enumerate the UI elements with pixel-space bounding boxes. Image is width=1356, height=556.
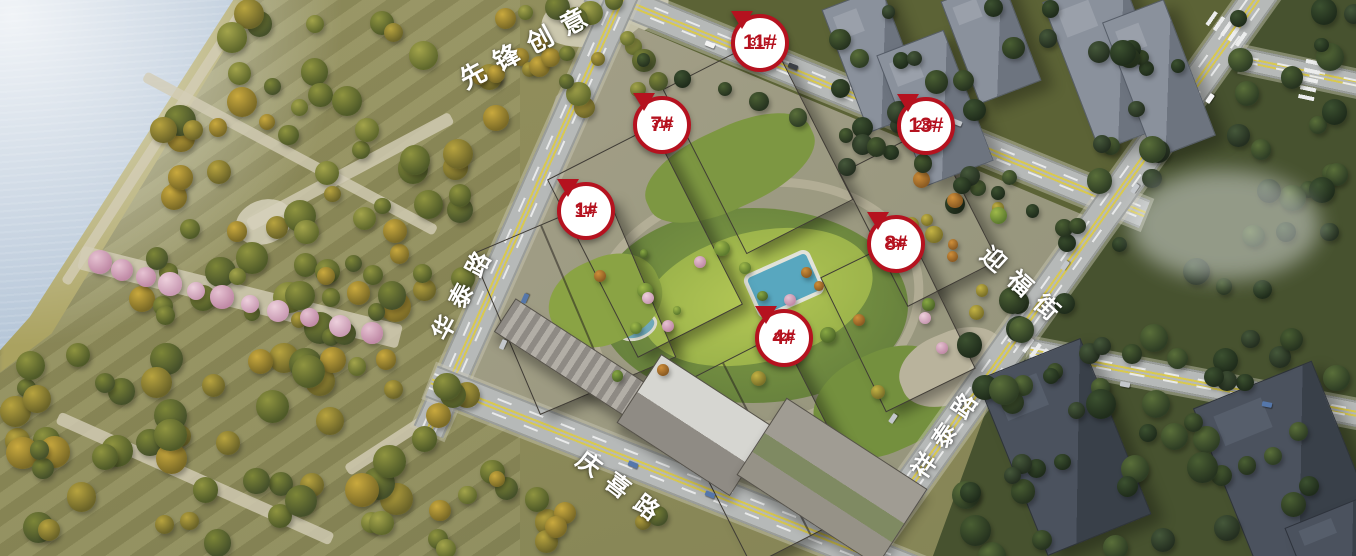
tree [820, 327, 835, 342]
tree [1142, 169, 1162, 189]
tree [921, 214, 933, 226]
tree [831, 79, 851, 99]
tree [637, 53, 650, 66]
tree [292, 355, 325, 388]
tree [111, 259, 133, 281]
building-floors: 31F [652, 118, 673, 131]
tree [984, 0, 1003, 17]
tree [141, 367, 172, 398]
tree [88, 250, 112, 274]
tree [936, 342, 948, 354]
building-floors: 31F [576, 204, 597, 217]
tree [867, 137, 886, 156]
tree [1228, 48, 1252, 72]
tree [525, 487, 549, 511]
tree [308, 83, 333, 108]
pin-tail [557, 179, 579, 197]
tree [990, 207, 1007, 224]
tree [620, 31, 635, 46]
tree [1281, 492, 1306, 517]
tree [30, 440, 49, 459]
tree [306, 15, 324, 33]
tree [158, 272, 181, 295]
tree [361, 322, 382, 343]
tree [315, 161, 339, 185]
tree [919, 312, 931, 324]
tree [256, 390, 289, 423]
tree [209, 118, 228, 137]
tree [1323, 365, 1350, 392]
tree [662, 320, 674, 332]
tree [739, 262, 750, 273]
tree [559, 46, 574, 61]
tree [1280, 328, 1303, 351]
building-floors: 22F [774, 331, 795, 344]
tree [1314, 38, 1329, 53]
tree [332, 86, 362, 116]
tree [989, 375, 1019, 405]
tree [363, 265, 383, 285]
tree [373, 445, 406, 478]
tree [227, 221, 248, 242]
tree [291, 99, 308, 116]
tree [957, 332, 983, 358]
tree [369, 511, 393, 535]
tree [1279, 185, 1306, 212]
tree [154, 419, 186, 451]
tree [1086, 389, 1116, 419]
tree [1204, 367, 1224, 387]
tree [294, 253, 318, 277]
tree [156, 306, 175, 325]
tree [449, 184, 472, 207]
tree [714, 241, 729, 256]
tree [489, 471, 505, 487]
aerial-masterplan-rendering: 先锋创意 华泰路 迎福街 祥泰路 庆喜路 1# 31F 4# 22F 7# 31… [0, 0, 1356, 556]
tree [1112, 237, 1127, 252]
tree [1122, 344, 1141, 363]
pin-tail [633, 93, 655, 111]
tree [749, 92, 769, 112]
tree [92, 444, 118, 470]
tree [229, 268, 246, 285]
tree [1069, 218, 1086, 235]
tree [168, 165, 192, 189]
tree [1043, 368, 1059, 384]
tree [1009, 317, 1035, 343]
tree [960, 482, 981, 503]
tree [217, 22, 247, 52]
tree [1227, 124, 1249, 146]
tree [193, 477, 218, 502]
tree [1103, 535, 1128, 556]
tree [947, 193, 963, 209]
tree [1087, 168, 1113, 194]
tree [1002, 37, 1025, 60]
tree [1322, 99, 1347, 124]
tree [378, 281, 406, 309]
tree [243, 468, 269, 494]
tree [316, 407, 344, 435]
tree [1039, 29, 1057, 47]
tree [216, 431, 240, 455]
tree [324, 186, 340, 202]
pin-tail [755, 306, 777, 324]
tree [1230, 10, 1247, 27]
tree [1281, 66, 1303, 88]
tree [559, 74, 574, 89]
tree [241, 295, 259, 313]
tree [210, 285, 233, 308]
tree [518, 5, 533, 20]
tree [882, 5, 895, 18]
tree [925, 226, 942, 243]
tree [1251, 139, 1272, 160]
tree [960, 515, 991, 546]
tree [264, 78, 281, 95]
tree [991, 186, 1004, 199]
tree [1139, 424, 1157, 442]
tree [1216, 278, 1233, 295]
tree [294, 220, 318, 244]
tree [1054, 454, 1070, 470]
tree [180, 512, 199, 531]
tree [1151, 528, 1175, 552]
tree [1117, 476, 1138, 497]
tree [285, 485, 317, 517]
tree [640, 249, 648, 257]
tree [850, 49, 868, 67]
tree [322, 288, 341, 307]
tree [1093, 135, 1111, 153]
tree [228, 62, 251, 85]
tree [838, 158, 856, 176]
tree [1068, 402, 1085, 419]
tree [352, 141, 370, 159]
tree [1214, 515, 1240, 541]
tree [1026, 204, 1039, 217]
tree [814, 281, 824, 291]
tree [914, 154, 933, 173]
tree [545, 516, 567, 538]
tree [1187, 452, 1218, 483]
building-floors: 31F [750, 36, 771, 49]
tree [412, 426, 437, 451]
tree [1238, 456, 1256, 474]
tree [345, 255, 362, 272]
tree [1299, 476, 1319, 496]
tree [1236, 374, 1253, 391]
building-floors: 28F [916, 119, 937, 132]
pin-tail [731, 11, 753, 29]
tree [1276, 222, 1296, 242]
tree [789, 108, 807, 126]
tree [953, 70, 974, 91]
tree [67, 482, 96, 511]
tree [1235, 81, 1259, 105]
tree [784, 294, 796, 306]
tree [1242, 225, 1264, 247]
tree [642, 292, 654, 304]
tree [495, 8, 516, 29]
tree [1004, 467, 1021, 484]
tree [136, 267, 156, 287]
tree [23, 385, 51, 413]
tree [907, 51, 922, 66]
tree [413, 264, 432, 283]
building-floors: 26F [886, 237, 907, 250]
tree [458, 486, 477, 505]
tree [483, 105, 509, 131]
tree [38, 519, 60, 541]
tree [947, 251, 958, 262]
tree [267, 300, 289, 322]
pin-tail [867, 212, 889, 230]
tree [1140, 324, 1168, 352]
tree [285, 281, 315, 311]
tree [436, 539, 457, 556]
tree [227, 87, 257, 117]
tree [913, 171, 930, 188]
tree [674, 70, 691, 87]
tree [355, 118, 379, 142]
tree [612, 370, 624, 382]
tree [374, 198, 391, 215]
tree [829, 29, 851, 51]
tree [925, 70, 949, 94]
tree [694, 256, 706, 268]
tree [150, 117, 177, 144]
tree [1002, 170, 1017, 185]
tree [1183, 258, 1210, 285]
tree [976, 284, 988, 296]
tree [384, 23, 403, 42]
tree [1320, 223, 1338, 241]
tree [1289, 422, 1308, 441]
tree [839, 128, 854, 143]
pin-tail [897, 94, 919, 112]
tree [204, 529, 231, 556]
tree [278, 125, 298, 145]
tree [1241, 330, 1259, 348]
tree [66, 343, 90, 367]
tree [1110, 40, 1135, 65]
tree [426, 403, 451, 428]
tree [922, 298, 934, 310]
tree [429, 500, 451, 522]
